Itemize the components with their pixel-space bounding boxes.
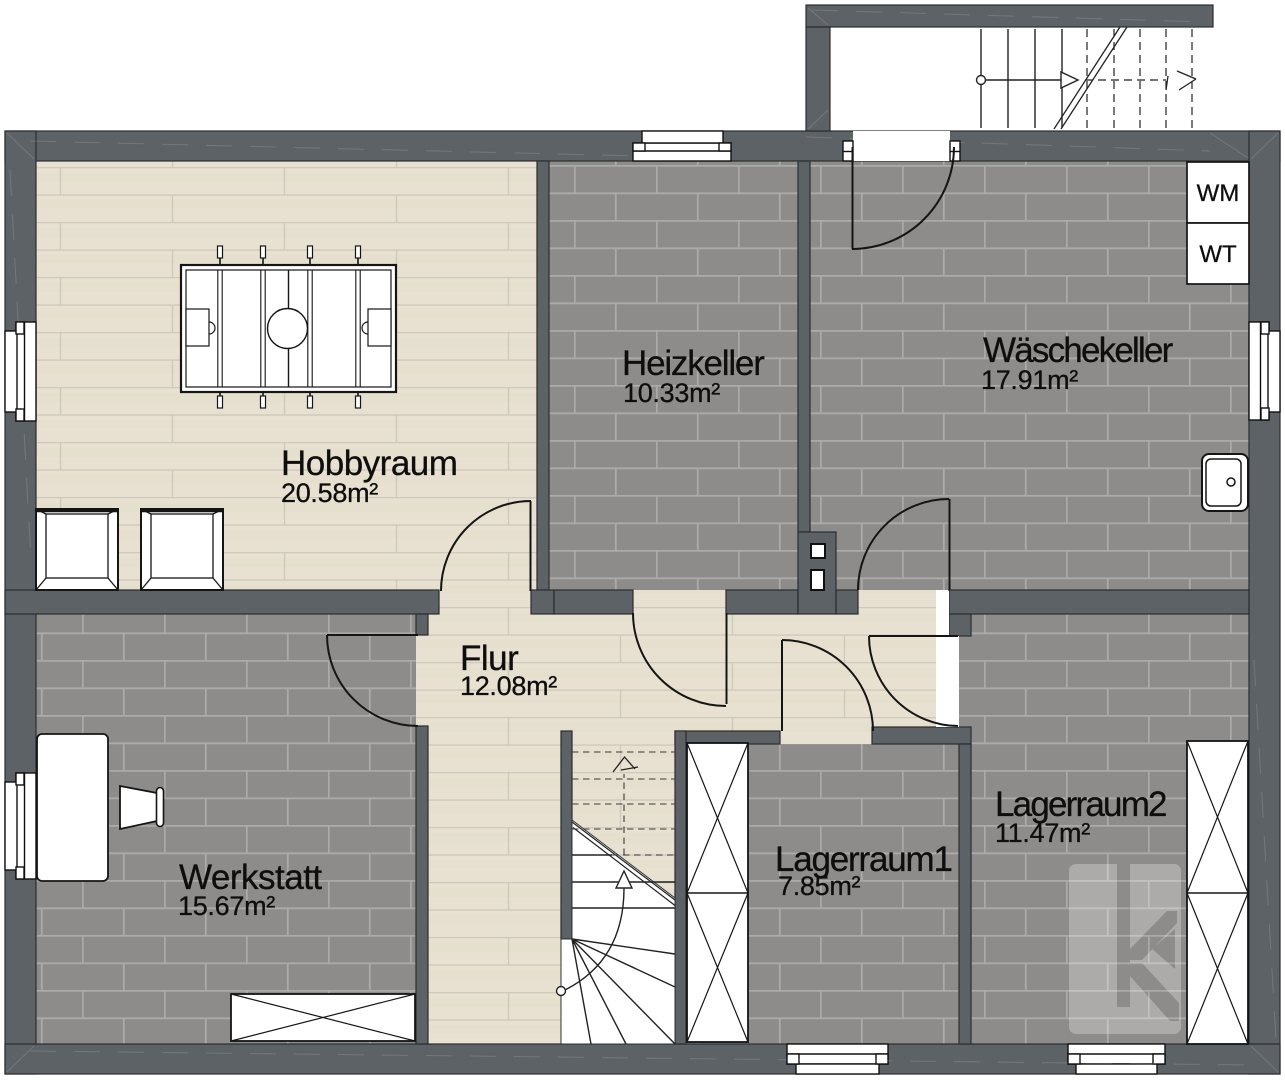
svg-text:15.67m²: 15.67m²	[178, 891, 275, 921]
svg-text:11.47m²: 11.47m²	[995, 818, 1090, 848]
svg-text:20.58m²: 20.58m²	[281, 478, 378, 508]
svg-text:WT: WT	[1199, 241, 1237, 268]
svg-text:WM: WM	[1197, 180, 1240, 207]
svg-text:7.85m²: 7.85m²	[778, 871, 861, 901]
svg-text:10.33m²: 10.33m²	[623, 378, 720, 408]
svg-text:12.08m²: 12.08m²	[460, 671, 557, 701]
svg-text:17.91m²: 17.91m²	[981, 365, 1078, 395]
